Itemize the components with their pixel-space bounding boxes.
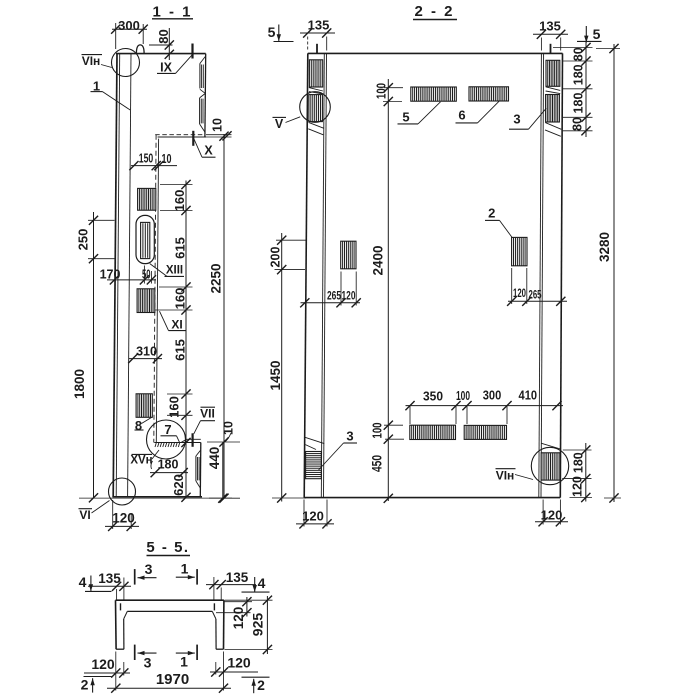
svg-text:4: 4 xyxy=(79,574,87,590)
svg-text:160: 160 xyxy=(173,288,188,310)
svg-text:4: 4 xyxy=(258,575,266,591)
svg-text:3: 3 xyxy=(144,655,152,671)
svg-text:925: 925 xyxy=(250,613,266,637)
svg-text:1: 1 xyxy=(180,654,188,670)
svg-text:180: 180 xyxy=(572,64,586,85)
svg-text:10: 10 xyxy=(162,152,172,166)
svg-text:440: 440 xyxy=(207,447,222,470)
svg-text:3: 3 xyxy=(346,429,353,444)
svg-text:1 - 1: 1 - 1 xyxy=(152,4,192,21)
svg-text:120: 120 xyxy=(302,509,324,524)
svg-text:450: 450 xyxy=(370,455,385,472)
svg-text:5: 5 xyxy=(593,26,601,42)
svg-text:1800: 1800 xyxy=(72,369,87,399)
svg-text:80: 80 xyxy=(571,117,585,131)
svg-text:120: 120 xyxy=(231,607,246,630)
svg-text:120: 120 xyxy=(91,656,115,672)
svg-text:1450: 1450 xyxy=(268,360,283,390)
svg-text:80: 80 xyxy=(572,47,586,61)
svg-text:10: 10 xyxy=(222,421,236,435)
svg-text:2: 2 xyxy=(81,676,89,692)
svg-text:120: 120 xyxy=(571,476,585,497)
svg-text:1970: 1970 xyxy=(156,671,189,688)
svg-text:615: 615 xyxy=(173,339,188,361)
svg-text:200: 200 xyxy=(268,247,282,268)
svg-text:VIн: VIн xyxy=(82,54,101,68)
svg-text:5: 5 xyxy=(402,110,409,125)
svg-text:VI: VI xyxy=(79,508,90,522)
svg-text:250: 250 xyxy=(76,229,91,251)
svg-text:100: 100 xyxy=(370,422,384,438)
svg-text:7: 7 xyxy=(164,422,171,437)
svg-text:180: 180 xyxy=(572,93,586,114)
svg-text:X: X xyxy=(204,144,213,158)
svg-text:1: 1 xyxy=(181,561,189,577)
svg-text:265: 265 xyxy=(529,287,542,301)
svg-text:150: 150 xyxy=(139,152,154,166)
svg-text:IX: IX xyxy=(160,61,172,75)
svg-text:160: 160 xyxy=(167,396,182,418)
svg-text:120: 120 xyxy=(227,654,251,670)
svg-text:180: 180 xyxy=(572,452,586,473)
svg-text:VIн: VIн xyxy=(496,469,515,483)
svg-text:300: 300 xyxy=(483,389,502,403)
svg-text:3: 3 xyxy=(145,561,153,577)
svg-text:135: 135 xyxy=(98,571,121,586)
svg-text:XIII: XIII xyxy=(166,265,183,277)
svg-text:2: 2 xyxy=(257,677,265,693)
svg-text:VII: VII xyxy=(200,407,215,421)
svg-text:135: 135 xyxy=(539,19,561,34)
svg-text:5: 5 xyxy=(268,24,276,40)
svg-text:10: 10 xyxy=(211,118,225,132)
svg-text:V: V xyxy=(275,117,284,131)
svg-text:8: 8 xyxy=(135,418,142,433)
svg-text:2250: 2250 xyxy=(209,263,224,293)
svg-text:100: 100 xyxy=(456,389,470,403)
svg-text:100: 100 xyxy=(374,83,388,99)
svg-text:2: 2 xyxy=(488,206,495,221)
svg-text:80: 80 xyxy=(156,29,171,43)
svg-text:180: 180 xyxy=(158,458,179,472)
svg-text:6: 6 xyxy=(458,108,465,123)
svg-text:615: 615 xyxy=(173,237,188,259)
svg-text:2 - 2: 2 - 2 xyxy=(414,3,454,20)
svg-text:135: 135 xyxy=(226,570,249,585)
svg-text:350: 350 xyxy=(423,389,443,403)
svg-text:3280: 3280 xyxy=(597,232,612,262)
svg-text:160: 160 xyxy=(172,190,187,212)
svg-text:300: 300 xyxy=(118,18,140,33)
svg-text:410: 410 xyxy=(519,389,538,403)
svg-text:2400: 2400 xyxy=(370,245,385,275)
svg-text:5 - 5.: 5 - 5. xyxy=(146,539,189,556)
svg-text:50: 50 xyxy=(142,267,151,281)
svg-text:310: 310 xyxy=(136,345,157,359)
svg-text:XI: XI xyxy=(171,318,182,332)
svg-text:3: 3 xyxy=(513,112,520,127)
svg-text:620: 620 xyxy=(171,474,186,496)
svg-text:XVн: XVн xyxy=(130,455,152,467)
svg-text:265: 265 xyxy=(327,288,341,302)
